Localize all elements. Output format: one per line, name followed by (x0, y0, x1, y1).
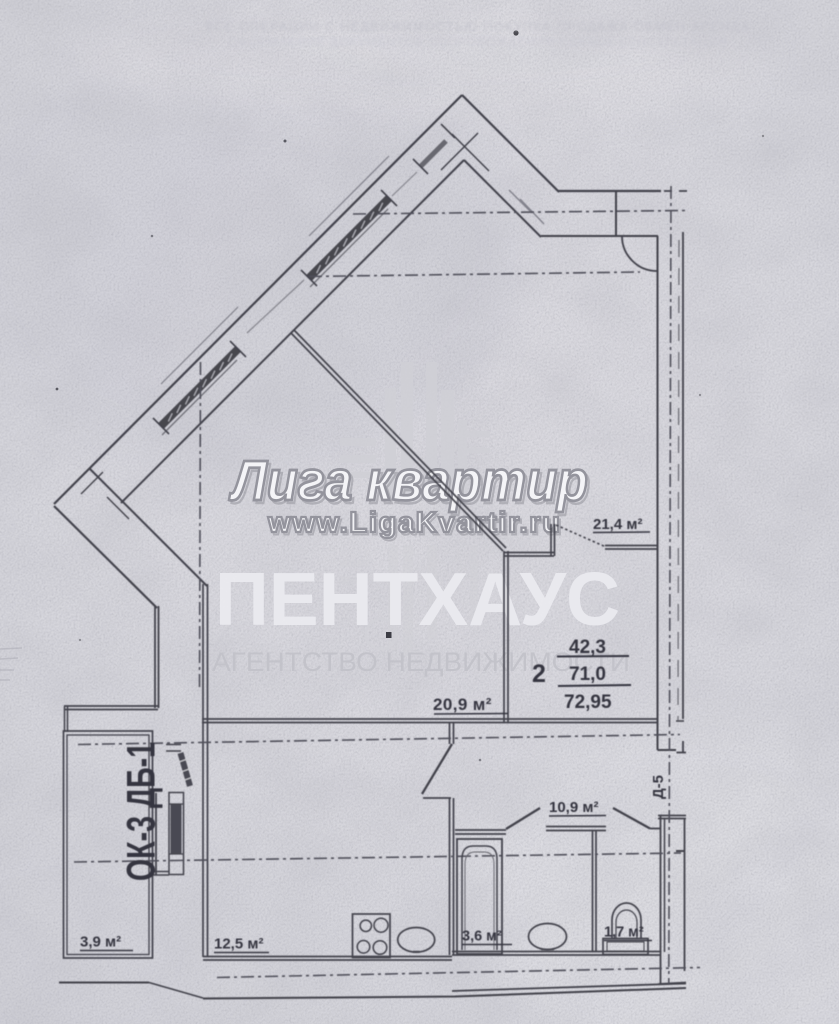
svg-text:www.LigaKvartir.ru: www.LigaKvartir.ru (267, 507, 560, 539)
svg-text:АГЕНТСТВО НЕДВИЖИМОСТИ: АГЕНТСТВО НЕДВИЖИМОСТИ (212, 647, 630, 677)
svg-text:ВСЕ ОПЕРАЦИИ С НЕДВИЖИМОСТЬЮ П: ВСЕ ОПЕРАЦИИ С НЕДВИЖИМОСТЬЮ ПОКУПКА ПРО… (205, 20, 750, 34)
svg-text:3,6 м²: 3,6 м² (462, 929, 502, 945)
svg-text:72,95: 72,95 (564, 692, 612, 713)
svg-text:12,5 м²: 12,5 м² (214, 936, 263, 953)
svg-text:1,7 м²: 1,7 м² (604, 925, 644, 941)
svg-text:ОК-3 ДБ-1: ОК-3 ДБ-1 (120, 742, 164, 881)
svg-text:20,9 м²: 20,9 м² (433, 695, 492, 714)
svg-text:Лига квартир: Лига квартир (228, 449, 588, 513)
svg-text:2: 2 (532, 660, 546, 688)
svg-text:10,9 м²: 10,9 м² (549, 799, 598, 816)
svg-text:21,4 м²: 21,4 м² (593, 516, 642, 533)
svg-text:42,3: 42,3 (569, 637, 606, 658)
svg-text:Д-5: Д-5 (650, 775, 667, 799)
svg-text:ПЕНТХАУС: ПЕНТХАУС (215, 557, 620, 641)
svg-text:71,0: 71,0 (569, 664, 606, 685)
svg-text:3,9 м²: 3,9 м² (80, 934, 121, 951)
svg-text:ОФОРМЛЕНИЕ ДОКУМЕНТОВ СОПРОВОЖ: ОФОРМЛЕНИЕ ДОКУМЕНТОВ СОПРОВОЖДЕНИЕ СДЕЛ… (228, 35, 728, 49)
